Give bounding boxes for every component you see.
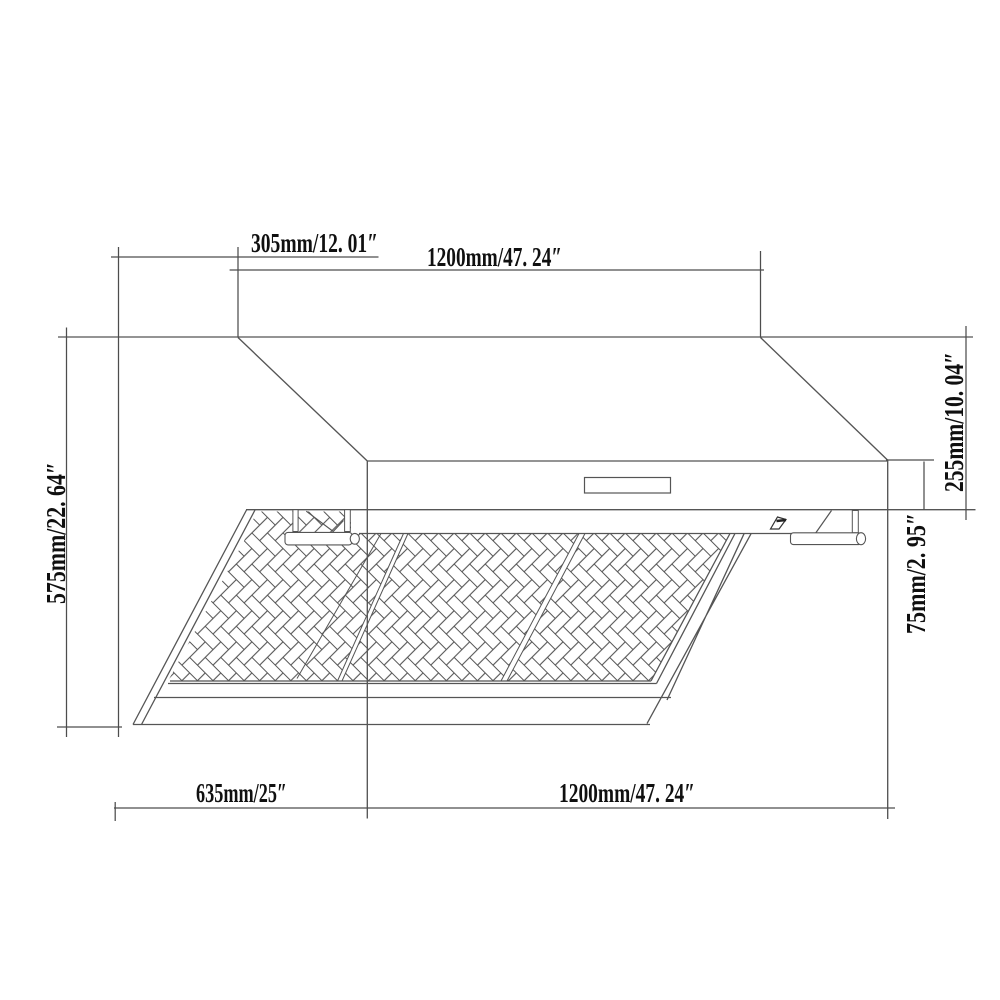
svg-text:75mm/2. 95″: 75mm/2. 95″ bbox=[901, 513, 931, 634]
svg-text:255mm/10. 04″: 255mm/10. 04″ bbox=[939, 352, 969, 492]
svg-text:305mm/12. 01″: 305mm/12. 01″ bbox=[251, 228, 378, 258]
svg-text:575mm/22. 64″: 575mm/22. 64″ bbox=[41, 462, 71, 604]
svg-text:1200mm/47. 24″: 1200mm/47. 24″ bbox=[427, 242, 562, 272]
svg-text:1200mm/47. 24″: 1200mm/47. 24″ bbox=[559, 778, 695, 808]
svg-text:635mm/25″: 635mm/25″ bbox=[196, 778, 287, 808]
